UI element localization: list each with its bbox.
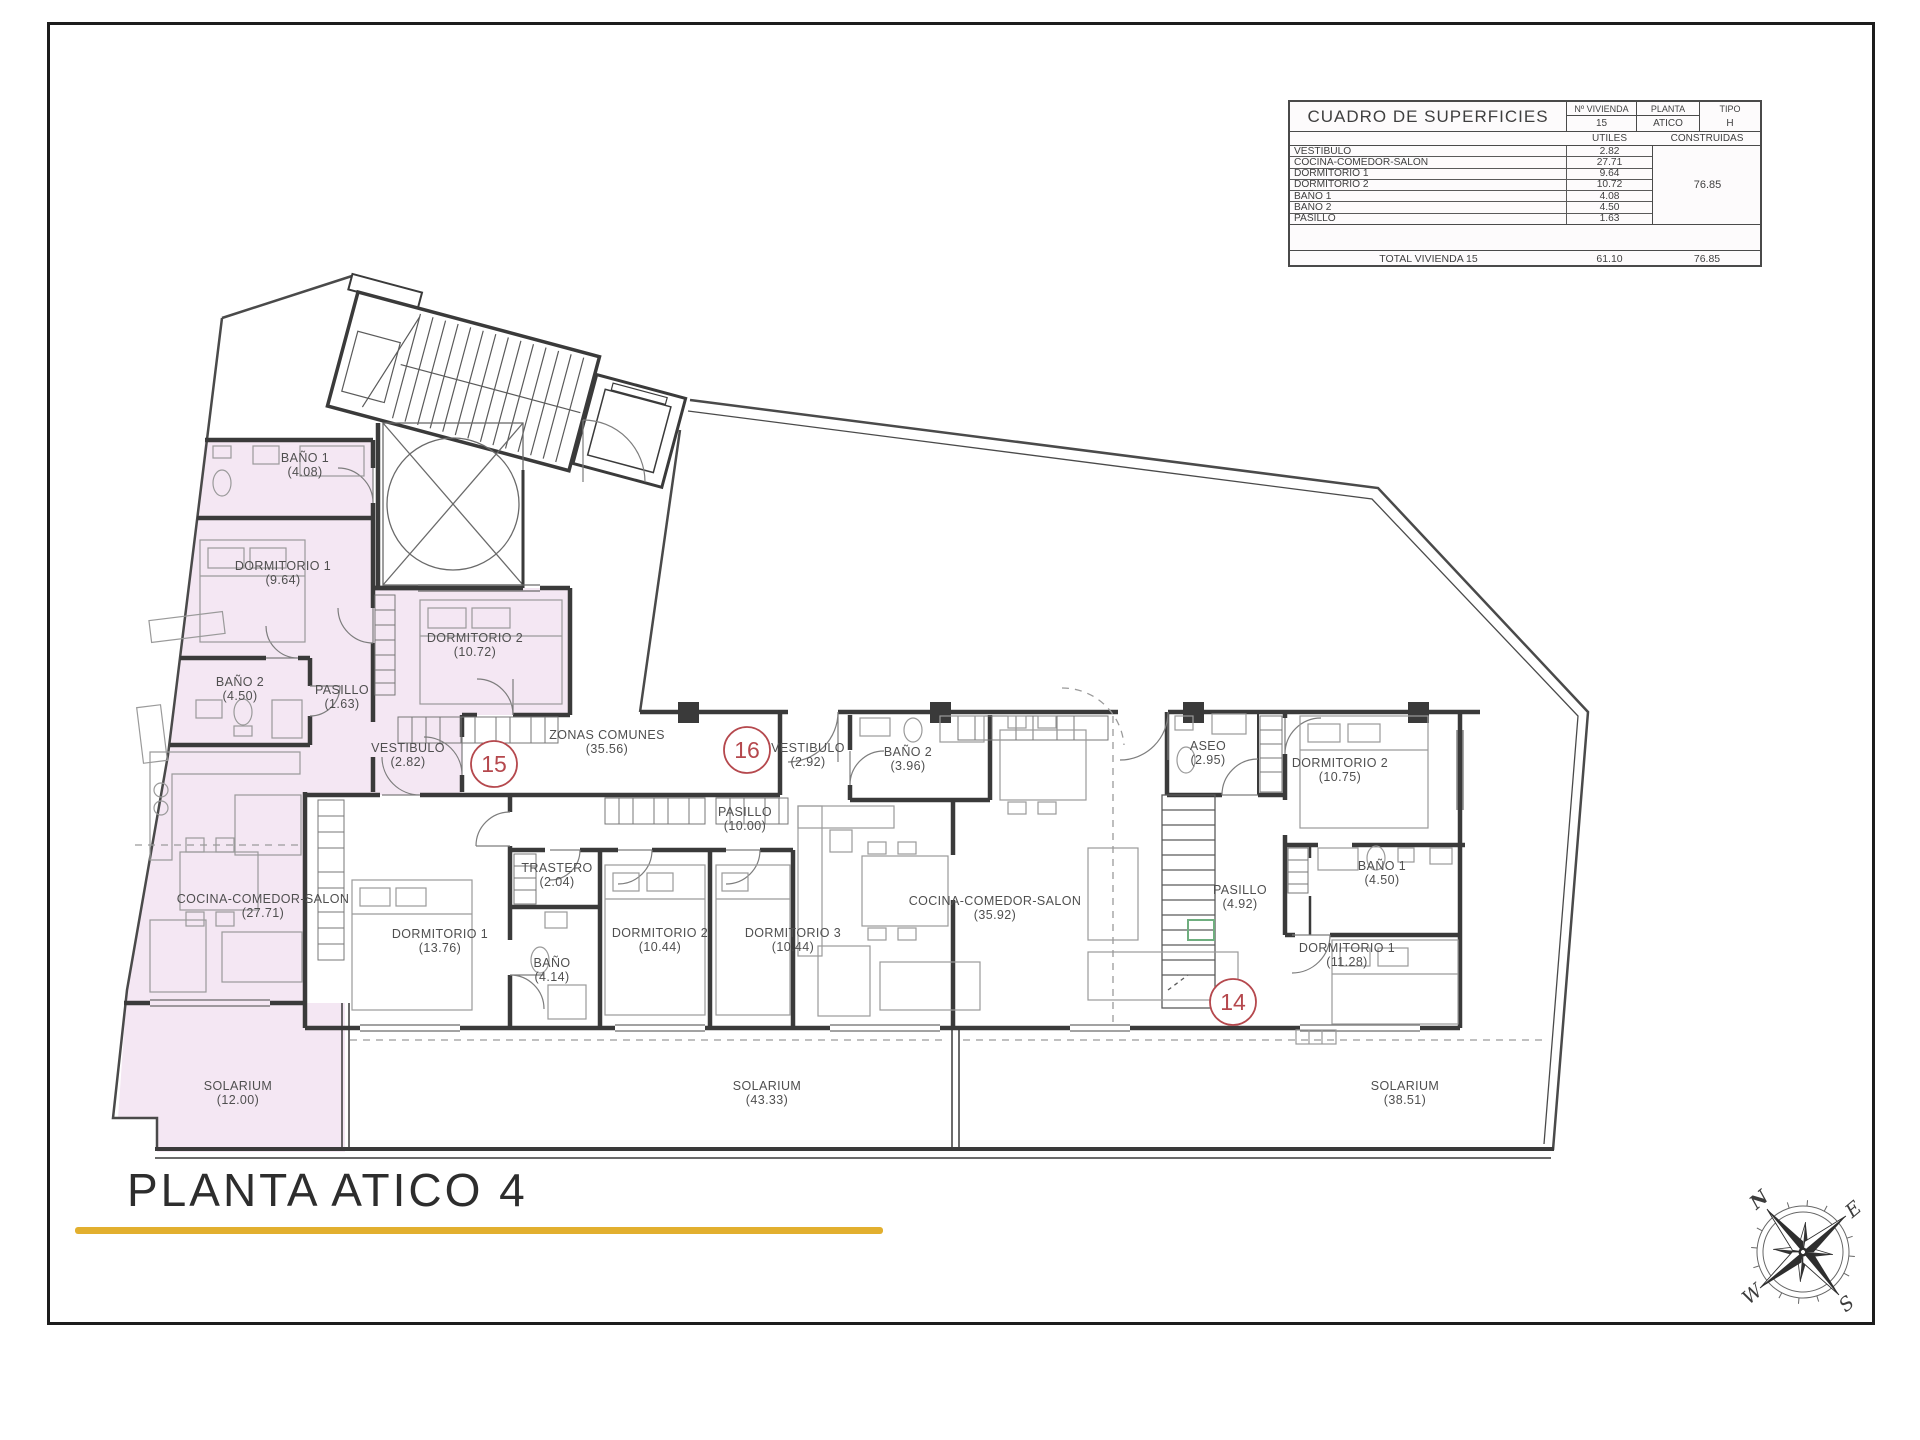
page: BAÑO 1(4.08)DORMITORIO 1(9.64)DORMITORIO… xyxy=(0,0,1920,1440)
compass-north-label: N xyxy=(1745,1185,1774,1214)
room-label: DORMITORIO 1(11.28) xyxy=(1299,941,1395,969)
surface-row: VESTIBULO2.82 xyxy=(1290,146,1652,157)
page-title: PLANTA ATICO 4 xyxy=(127,1163,528,1217)
room-utiles: 4.08 xyxy=(1567,191,1652,201)
room-name: DORMITORIO 2 xyxy=(1290,180,1567,190)
room-utiles: 27.71 xyxy=(1567,157,1652,167)
room-label: BAÑO 2(3.96) xyxy=(884,745,932,773)
surface-row: BAÑO 24.50 xyxy=(1290,202,1652,213)
header-tipo: TIPO xyxy=(1700,102,1760,116)
surface-table: CUADRO DE SUPERFICIES Nº VIVIENDA PLANTA… xyxy=(1288,100,1762,267)
room-label: COCINA-COMEDOR-SALON(35.92) xyxy=(909,894,1082,922)
room-label: SOLARIUM(38.51) xyxy=(1371,1079,1440,1107)
value-planta: ATICO xyxy=(1637,116,1700,131)
subheader-spacer xyxy=(1290,131,1567,146)
total-construidas: 76.85 xyxy=(1652,250,1762,267)
header-vivienda: Nº VIVIENDA xyxy=(1567,102,1637,116)
compass-east-label: E xyxy=(1840,1197,1866,1223)
room-utiles: 1.63 xyxy=(1567,214,1652,224)
compass-rose: N E S W xyxy=(1694,1145,1910,1362)
total-label: TOTAL VIVIENDA 15 xyxy=(1290,250,1567,267)
room-name: BAÑO 1 xyxy=(1290,191,1567,201)
patio-light-shaft xyxy=(383,423,523,585)
terrace-wall xyxy=(155,1149,1554,1158)
svg-text:15: 15 xyxy=(481,751,507,777)
duplex-stairs xyxy=(1162,795,1215,1008)
surface-row: PASILLO1.63 xyxy=(1290,214,1652,225)
room-label: BAÑO(4.14) xyxy=(533,956,570,984)
room-name: PASILLO xyxy=(1290,214,1567,224)
compass-south-label: S xyxy=(1835,1291,1859,1316)
value-vivienda: 15 xyxy=(1567,116,1637,131)
surface-row: DORMITORIO 19.64 xyxy=(1290,169,1652,180)
svg-text:14: 14 xyxy=(1220,989,1246,1015)
room-label: DORMITORIO 3(10.44) xyxy=(745,926,841,954)
subheader-construidas: CONSTRUIDAS xyxy=(1652,131,1762,146)
compass-west-label: W xyxy=(1738,1279,1768,1309)
room-label: PASILLO(10.00) xyxy=(718,805,772,833)
unit-badge-16: 16 xyxy=(724,727,770,773)
unit-badge-15: 15 xyxy=(471,741,517,787)
patio-walls xyxy=(373,423,523,588)
room-name: COCINA-COMEDOR-SALON xyxy=(1290,157,1567,167)
subheader-utiles: UTILES xyxy=(1567,131,1652,146)
room-label: BAÑO 1(4.08) xyxy=(281,451,329,479)
solarium-divider-right xyxy=(952,1028,959,1149)
room-label: DORMITORIO 1(13.76) xyxy=(392,927,488,955)
room-label: ASEO(2.95) xyxy=(1190,739,1226,767)
title-accent-rule xyxy=(75,1227,883,1234)
surface-row: DORMITORIO 210.72 xyxy=(1290,180,1652,191)
surface-table-title: CUADRO DE SUPERFICIES xyxy=(1290,102,1567,131)
room-utiles: 4.50 xyxy=(1567,202,1652,212)
surface-rows: VESTIBULO2.82COCINA-COMEDOR-SALON27.71DO… xyxy=(1290,146,1652,225)
room-name: VESTIBULO xyxy=(1290,146,1567,156)
room-label: DORMITORIO 2(10.75) xyxy=(1292,756,1388,784)
room-utiles: 9.64 xyxy=(1567,169,1652,179)
construidas-total-cell: 76.85 xyxy=(1652,146,1762,225)
room-label: SOLARIUM(43.33) xyxy=(733,1079,802,1107)
room-label: ZONAS COMUNES(35.56) xyxy=(549,728,665,756)
unit-badge-14: 14 xyxy=(1210,979,1256,1025)
surface-row: COCINA-COMEDOR-SALON27.71 xyxy=(1290,157,1652,168)
room-name: BAÑO 2 xyxy=(1290,202,1567,212)
room-label: BAÑO 1(4.50) xyxy=(1358,859,1406,887)
header-planta: PLANTA xyxy=(1637,102,1700,116)
surface-row: BAÑO 14.08 xyxy=(1290,191,1652,202)
room-utiles: 2.82 xyxy=(1567,146,1652,156)
room-label: BAÑO 2(4.50) xyxy=(216,675,264,703)
room-utiles: 10.72 xyxy=(1567,180,1652,190)
svg-text:16: 16 xyxy=(734,737,760,763)
room-label: PASILLO(4.92) xyxy=(1213,883,1267,911)
room-name: DORMITORIO 1 xyxy=(1290,169,1567,179)
value-tipo: H xyxy=(1700,116,1760,131)
room-label: DORMITORIO 2(10.44) xyxy=(612,926,708,954)
room-label: TRASTERO(2.04) xyxy=(521,861,592,889)
total-utiles: 61.10 xyxy=(1567,250,1652,267)
